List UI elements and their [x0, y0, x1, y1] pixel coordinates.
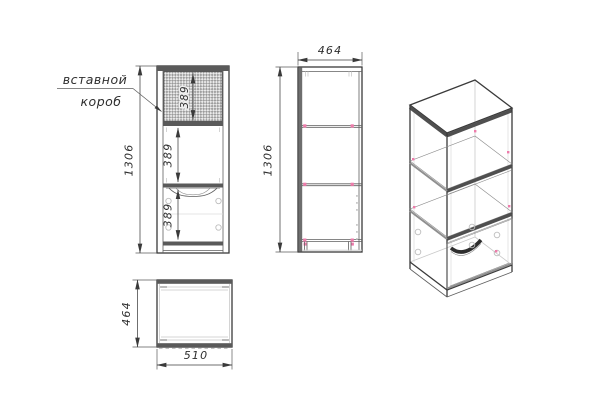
top-back-panel-band	[157, 343, 232, 347]
dim-side-height: 1306	[262, 144, 275, 177]
callout-label-line1: вставной	[63, 72, 128, 87]
isometric-view	[410, 80, 512, 297]
iso-top-edge-band-front	[447, 111, 512, 136]
technical-drawing: 389 389 389	[0, 0, 600, 420]
dim-front-top-section: 389	[179, 85, 191, 108]
dim-top-width-group: 510	[157, 349, 232, 370]
iso-top-edge-band-left	[410, 108, 447, 136]
iso-drawer-handle	[451, 240, 481, 252]
iso-top-face	[410, 80, 512, 133]
dim-front-middle-section: 389	[162, 143, 175, 168]
blueprint-canvas: 389 389 389	[0, 0, 600, 420]
front-top-panel	[157, 66, 229, 71]
top-front-panel-band	[157, 280, 232, 284]
dim-top-depth-group: 464	[120, 280, 157, 347]
dim-side-width: 464	[318, 44, 343, 57]
side-view: 464 1306	[262, 44, 363, 252]
front-bottom-band	[163, 242, 223, 246]
dim-front-drawer-section: 389	[162, 203, 175, 228]
top-view: 464 510	[120, 280, 232, 370]
insert-box-callout: вставной короб	[57, 72, 162, 112]
side-front-edge-band	[299, 68, 303, 252]
iso-base	[410, 262, 512, 297]
dim-side-height-group: 1306	[262, 67, 299, 252]
iso-shelf-1	[410, 136, 512, 195]
dim-front-height: 1306	[123, 144, 136, 177]
dim-side-width-group: 464	[298, 44, 362, 66]
callout-label-line2: короб	[81, 94, 122, 109]
front-shelf-band-2	[163, 184, 223, 188]
dim-top-depth: 464	[120, 301, 133, 326]
iso-shelf-2	[410, 184, 512, 243]
dim-top-width: 510	[184, 349, 209, 362]
front-view: 389 389 389	[57, 66, 229, 253]
front-shelf-band-1	[163, 122, 223, 127]
side-outline	[298, 67, 362, 252]
